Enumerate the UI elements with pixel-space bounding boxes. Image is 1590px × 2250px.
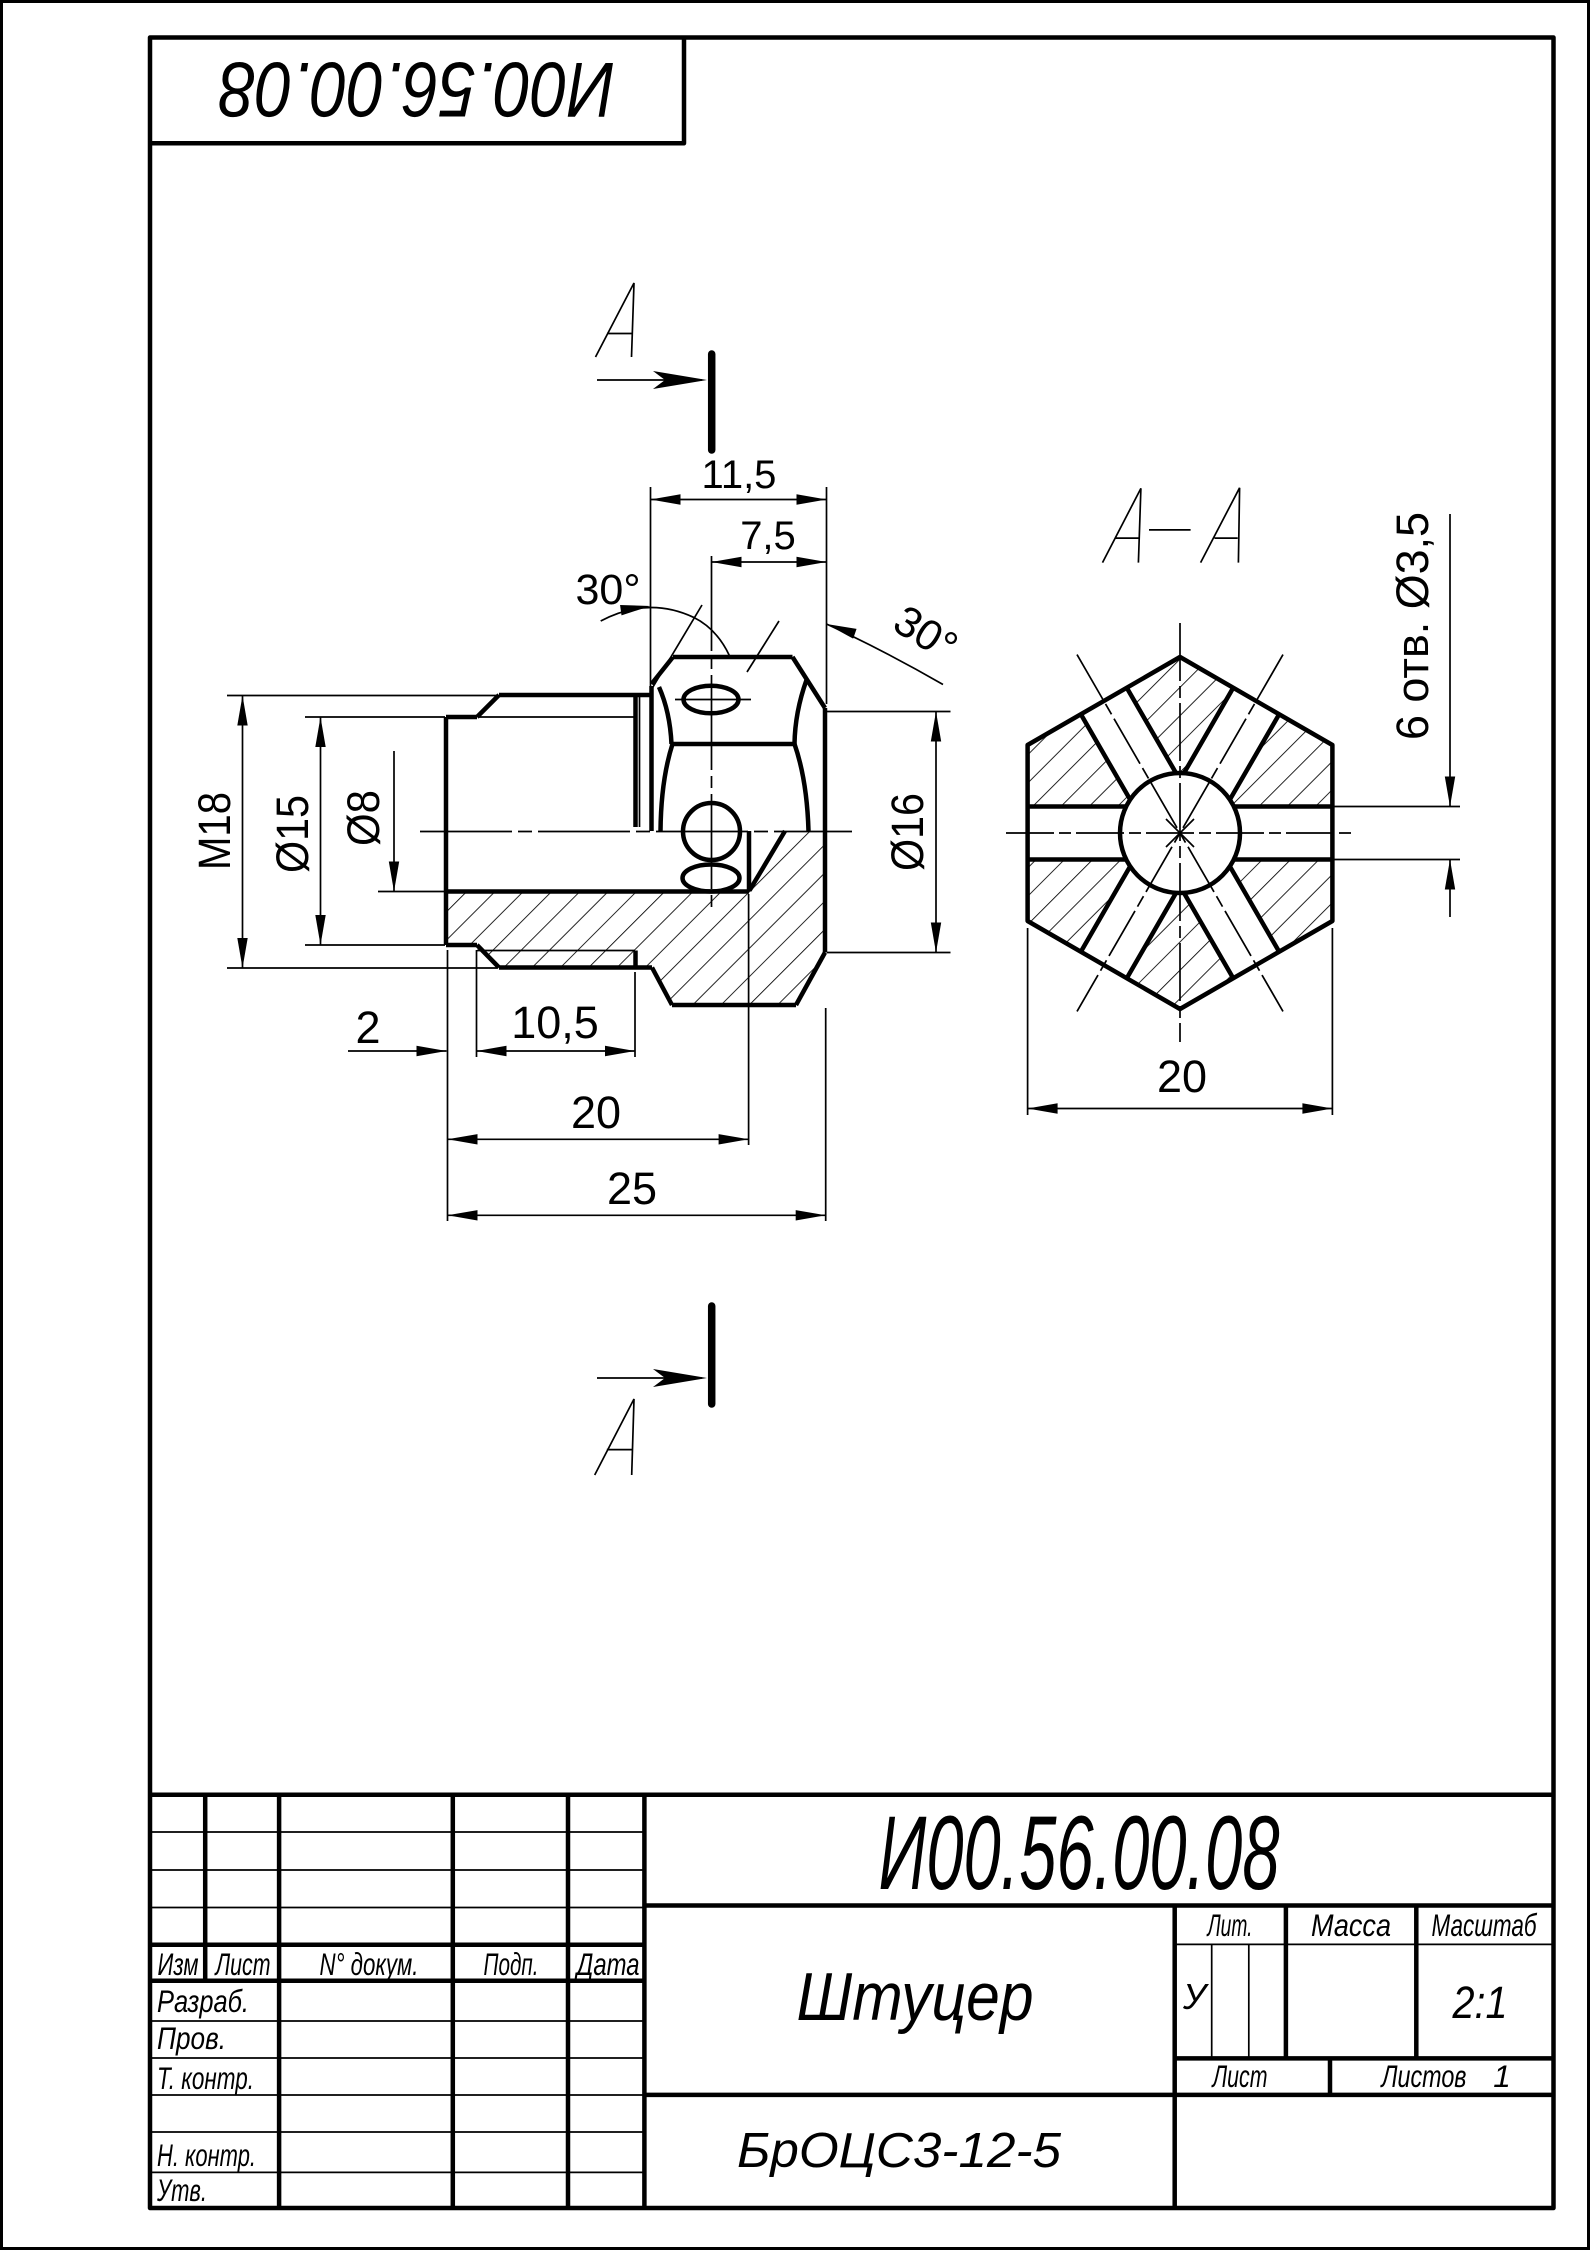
svg-text:Ø8: Ø8	[338, 790, 389, 846]
svg-text:Разраб.: Разраб.	[157, 1983, 249, 2019]
svg-text:6 отв. Ø3,5: 6 отв. Ø3,5	[1387, 512, 1438, 740]
svg-text:Лит.: Лит.	[1206, 1907, 1252, 1943]
svg-text:БрОЦС3-12-5: БрОЦС3-12-5	[737, 2124, 1062, 2178]
svg-text:20: 20	[1157, 1051, 1207, 1102]
svg-text:Листов: Листов	[1380, 2058, 1466, 2094]
svg-text:20: 20	[571, 1087, 621, 1138]
svg-text:И00.56.00.08: И00.56.00.08	[219, 46, 615, 134]
svg-text:2: 2	[355, 1002, 380, 1053]
svg-text:N° докум.: N° докум.	[320, 1946, 419, 1982]
svg-text:M18: M18	[189, 792, 240, 870]
svg-text:Изм: Изм	[158, 1946, 199, 1982]
svg-text:Т. контр.: Т. контр.	[157, 2060, 254, 2096]
svg-text:Масштаб: Масштаб	[1432, 1907, 1538, 1943]
svg-text:2:1: 2:1	[1452, 1977, 1508, 2028]
svg-text:Штуцер: Штуцер	[797, 1959, 1034, 2035]
svg-text:Лист: Лист	[214, 1946, 270, 1982]
svg-text:Масса: Масса	[1311, 1907, 1391, 1943]
svg-text:Дата: Дата	[574, 1946, 639, 1982]
svg-text:Утв.: Утв.	[156, 2172, 207, 2208]
svg-text:Подп.: Подп.	[484, 1946, 539, 1982]
svg-text:Ø16: Ø16	[882, 793, 933, 871]
svg-text:1: 1	[1493, 2058, 1511, 2094]
svg-text:Лист: Лист	[1211, 2058, 1267, 2094]
svg-text:10,5: 10,5	[511, 997, 599, 1048]
svg-text:Н. контр.: Н. контр.	[157, 2137, 256, 2173]
svg-text:25: 25	[607, 1163, 657, 1214]
svg-text:7,5: 7,5	[740, 514, 796, 558]
svg-text:И00.56.00.08: И00.56.00.08	[879, 1795, 1280, 1912]
svg-text:У: У	[1182, 1976, 1209, 2017]
svg-text:Ø15: Ø15	[267, 795, 318, 873]
svg-text:Пров.: Пров.	[157, 2020, 226, 2056]
svg-text:11,5: 11,5	[702, 453, 777, 497]
